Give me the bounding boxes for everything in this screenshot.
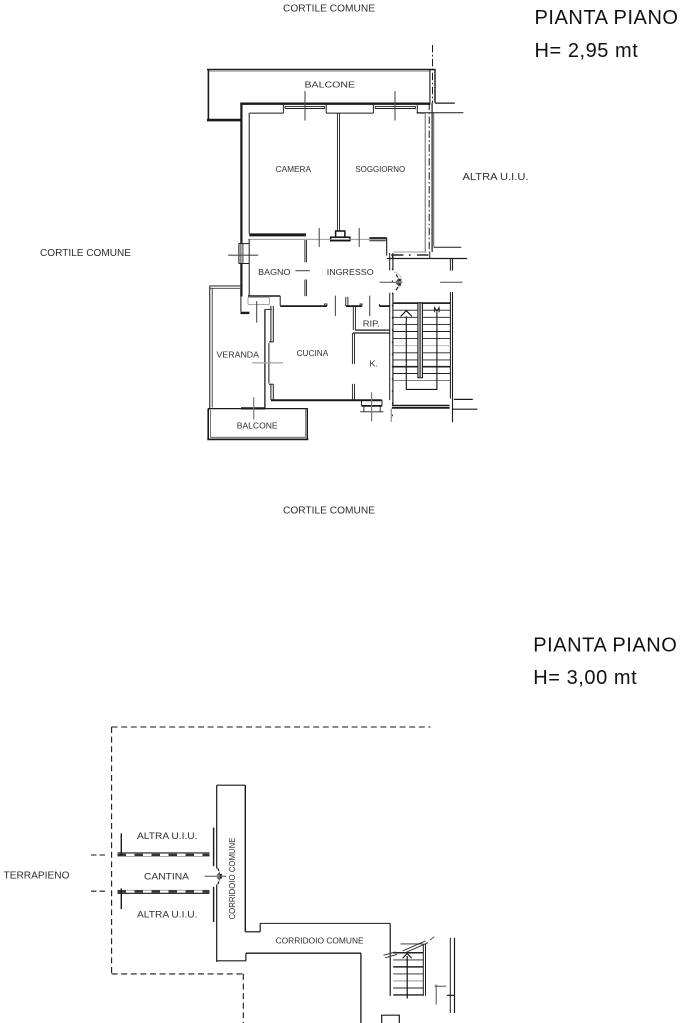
- svg-text:CANTINA: CANTINA: [144, 871, 190, 882]
- svg-text:CORTILE COMUNE: CORTILE COMUNE: [40, 248, 131, 259]
- svg-text:BAGNO: BAGNO: [258, 267, 291, 277]
- svg-text:INGRESSO: INGRESSO: [327, 267, 374, 277]
- svg-text:PIANTA PIANO: PIANTA PIANO: [533, 634, 677, 656]
- svg-text:CORRIDOIO COMUNE: CORRIDOIO COMUNE: [276, 936, 364, 945]
- svg-text:K.: K.: [370, 358, 379, 368]
- svg-text:CORRIDOIO COMUNE: CORRIDOIO COMUNE: [228, 838, 237, 920]
- svg-text:CORTILE COMUNE: CORTILE COMUNE: [283, 4, 375, 15]
- svg-text:ALTRA U.I.U.: ALTRA U.I.U.: [463, 172, 529, 183]
- svg-text:VERANDA: VERANDA: [217, 349, 260, 359]
- svg-text:CUCINA: CUCINA: [297, 348, 329, 358]
- svg-text:BALCONE: BALCONE: [237, 421, 278, 431]
- svg-text:BALCONE: BALCONE: [305, 80, 356, 90]
- svg-text:ALTRA U.I.U.: ALTRA U.I.U.: [137, 909, 198, 920]
- svg-text:SOGGIORNO: SOGGIORNO: [355, 164, 405, 174]
- svg-text:PIANTA PIANO: PIANTA PIANO: [535, 7, 679, 29]
- svg-text:ALTRA U.I.U.: ALTRA U.I.U.: [137, 831, 198, 842]
- svg-text:H= 2,95 mt: H= 2,95 mt: [535, 40, 639, 62]
- svg-text:CAMERA: CAMERA: [276, 164, 312, 174]
- svg-text:RIP.: RIP.: [363, 318, 380, 328]
- svg-text:CORTILE COMUNE: CORTILE COMUNE: [283, 506, 375, 517]
- svg-text:TERRAPIENO: TERRAPIENO: [4, 870, 70, 881]
- svg-text:H= 3,00 mt: H= 3,00 mt: [533, 667, 637, 689]
